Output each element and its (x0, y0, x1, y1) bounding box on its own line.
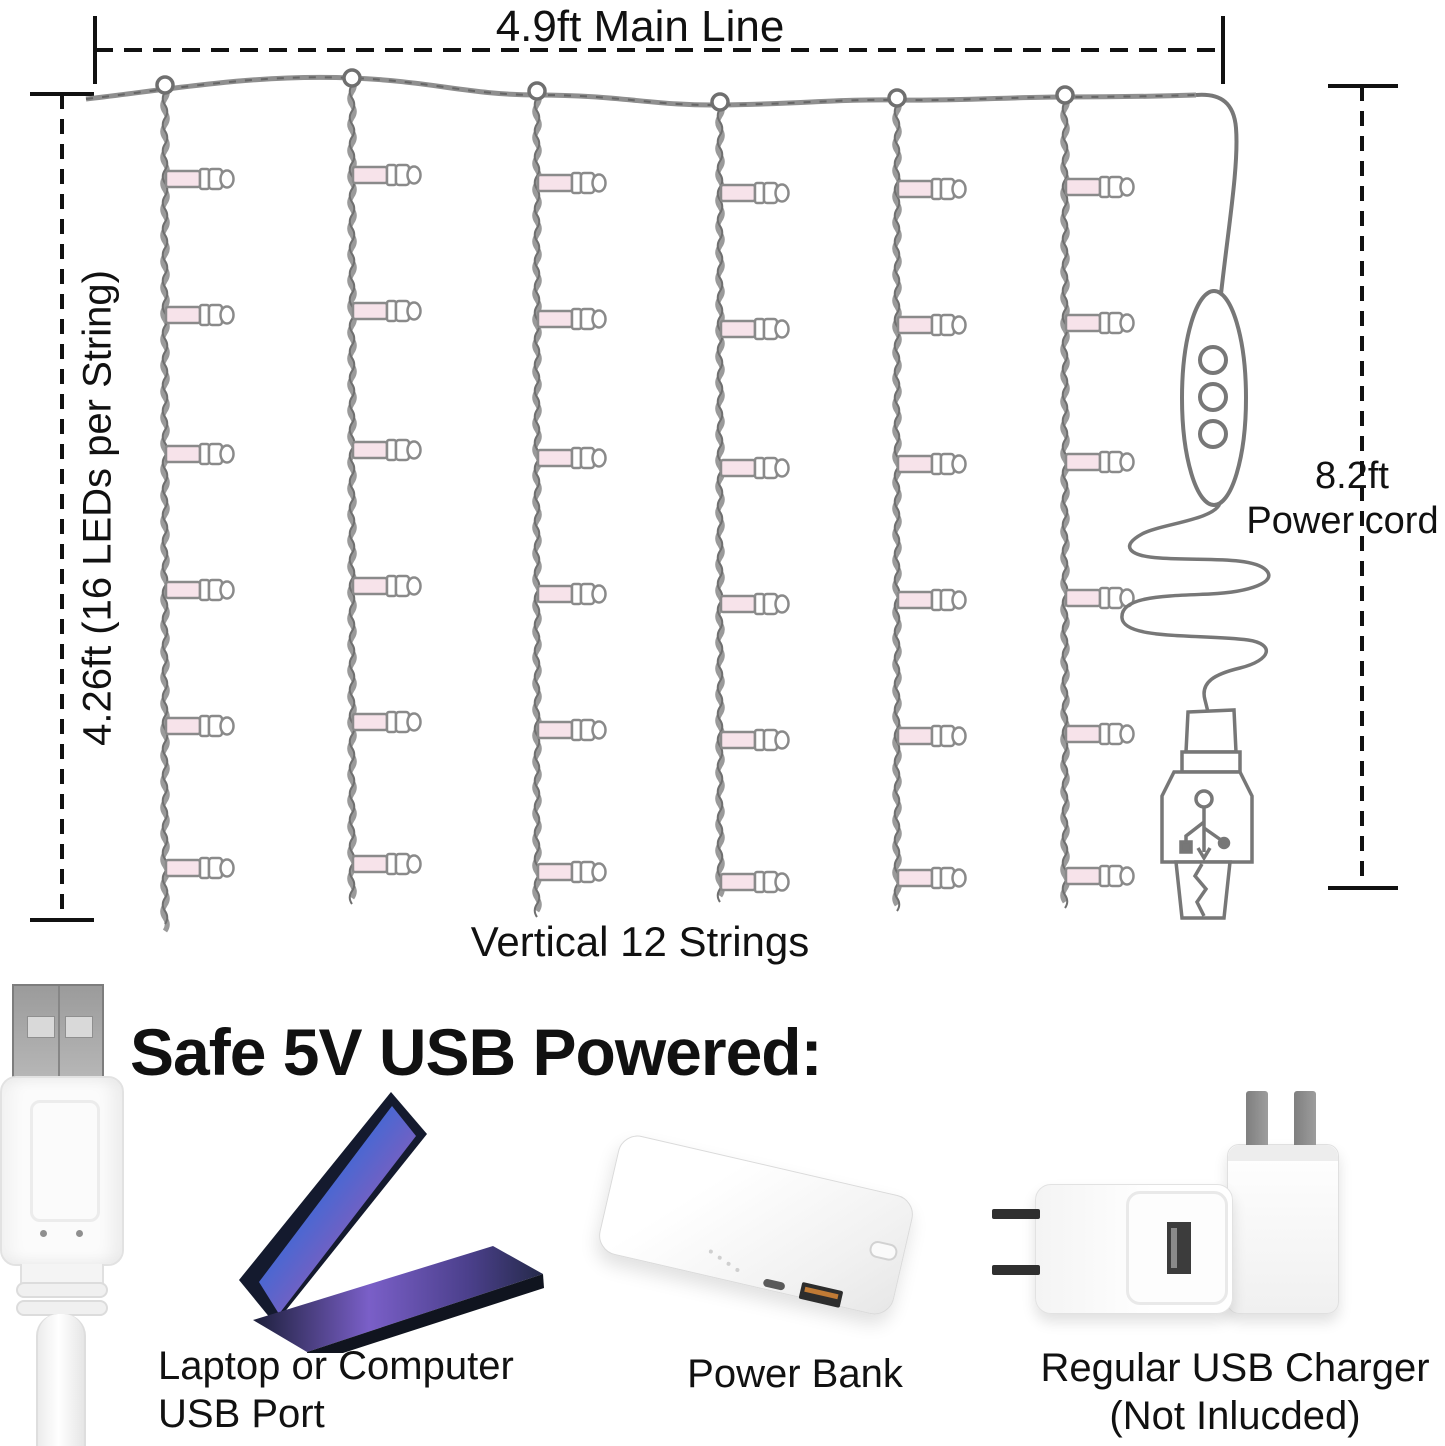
power-bank-usb-port (799, 1282, 844, 1308)
section-heading: Safe 5V USB Powered: (130, 1014, 822, 1090)
string-lights-diagram (0, 0, 1445, 980)
led-bulb-tube (353, 856, 387, 872)
led-bulb-tube (1066, 590, 1100, 606)
usb-plug-cable (36, 1314, 86, 1446)
string-attachment-clip (712, 94, 728, 110)
usb-connector-step (1182, 752, 1240, 772)
led-bulb-collar (572, 584, 581, 604)
led-bulb-tube (353, 167, 387, 183)
led-bulb-cap (408, 578, 421, 595)
led-bulb-collar (755, 319, 764, 339)
charger-prong (1294, 1091, 1316, 1149)
led-bulb-collar (755, 594, 764, 614)
led-bulb-cap (593, 450, 606, 467)
led-bulb-cap (953, 456, 966, 473)
led-bulb-cap (1121, 179, 1134, 196)
string-height-dimension-label: 4.26ft (16 LEDs per String) (76, 270, 121, 746)
usb-plug-body (0, 1076, 124, 1266)
string-attachment-clip (344, 70, 360, 86)
controller-button (1200, 347, 1226, 373)
led-bulb-cap (593, 722, 606, 739)
led-bulb-cap (408, 714, 421, 731)
usb-connector-body (1162, 772, 1252, 862)
power-bank-label: Power Bank (640, 1352, 950, 1397)
led-bulb-cap (953, 181, 966, 198)
led-bulb-cap (953, 728, 966, 745)
led-bulb-collar (200, 716, 209, 736)
led-bulb-tube (166, 307, 200, 323)
led-bulb-tube (166, 446, 200, 462)
led-bulb-collar (387, 576, 396, 596)
string-attachment-clip (529, 83, 545, 99)
led-bulb-collar (755, 458, 764, 478)
led-bulb-tube (353, 578, 387, 594)
led-bulb-collar (1100, 452, 1109, 472)
led-bulb-tube (166, 171, 200, 187)
led-bulb-cap (221, 307, 234, 324)
usb-plug-photo (0, 984, 140, 1446)
led-bulb-collar (387, 165, 396, 185)
led-bulb-collar (755, 730, 764, 750)
power-bank-micro-usb-port (762, 1278, 785, 1291)
led-bulb-cap (776, 321, 789, 338)
power-cord-length-label: 8.2ft (1252, 455, 1445, 498)
led-bulb-tube (353, 442, 387, 458)
led-bulb-collar (387, 301, 396, 321)
led-bulb-tube (538, 586, 572, 602)
led-bulb-tube (538, 175, 572, 191)
led-bulb-collar (572, 173, 581, 193)
led-bulb-tube (721, 185, 755, 201)
led-bulb-cap (221, 582, 234, 599)
led-bulb-cap (221, 718, 234, 735)
led-bulb-cap (408, 856, 421, 873)
led-bulb-cap (776, 185, 789, 202)
usb-charger-photo (1035, 1082, 1375, 1332)
led-bulb-tube (353, 303, 387, 319)
led-bulb-collar (932, 454, 941, 474)
led-bulb-tube (1066, 179, 1100, 195)
usb-connector-drawing (1162, 710, 1252, 918)
led-bulb-cap (221, 446, 234, 463)
led-bulb-tube (898, 728, 932, 744)
vertical-strings-count-label: Vertical 12 Strings (390, 918, 890, 966)
led-bulb-cap (776, 596, 789, 613)
string-attachment-clip (157, 77, 173, 93)
power-bank-button (868, 1239, 899, 1262)
led-bulb-cap (1121, 726, 1134, 743)
charger-prong (992, 1209, 1040, 1219)
led-bulb-collar (1100, 724, 1109, 744)
led-bulb-collar (200, 580, 209, 600)
led-bulb-collar (932, 179, 941, 199)
usb-connector-neck (1186, 710, 1236, 752)
led-bulb-tube (898, 317, 932, 333)
led-bulb-tube (538, 864, 572, 880)
charger-prong (992, 1265, 1040, 1275)
led-bulb-cap (1121, 315, 1134, 332)
led-bulb-tube (1066, 868, 1100, 884)
led-bulb-cap (776, 732, 789, 749)
led-bulb-collar (200, 305, 209, 325)
led-bulb-collar (572, 862, 581, 882)
led-bulb-cap (1121, 868, 1134, 885)
led-bulb-collar (755, 183, 764, 203)
led-bulb-collar (200, 169, 209, 189)
main-line-dimension-label: 4.9ft Main Line (440, 2, 840, 52)
led-bulb-tube (721, 596, 755, 612)
led-bulb-cap (1121, 454, 1134, 471)
led-bulb-collar (200, 444, 209, 464)
led-bulb-cap (221, 860, 234, 877)
controller-button (1200, 421, 1226, 447)
led-bulb-tube (721, 460, 755, 476)
led-bulb-collar (572, 309, 581, 329)
led-bulb-tube (538, 450, 572, 466)
led-bulb-tube (166, 718, 200, 734)
led-bulb-tube (1066, 454, 1100, 470)
usb-connector-metal (1176, 862, 1230, 918)
usb-charger-label: Regular USB Charger (Not Inlucded) (1025, 1344, 1445, 1440)
charger-prong (1246, 1091, 1268, 1149)
led-bulb-collar (387, 854, 396, 874)
usb-plug-contact (27, 1016, 55, 1038)
led-bulb-collar (387, 440, 396, 460)
led-bulb-cap (593, 586, 606, 603)
led-bulb-collar (932, 315, 941, 335)
led-bulb-cap (408, 303, 421, 320)
led-bulb-collar (387, 712, 396, 732)
string-attachment-clip (1057, 87, 1073, 103)
laptop-photo (195, 1088, 545, 1353)
usb-charger-lying (1035, 1184, 1233, 1314)
led-bulb-tube (898, 592, 932, 608)
led-bulb-tube (1066, 726, 1100, 742)
led-bulb-collar (200, 858, 209, 878)
laptop-label: Laptop or Computer USB Port (158, 1342, 514, 1438)
led-bulb-tube (721, 874, 755, 890)
led-bulb-tube (898, 870, 932, 886)
power-cord-upper (1196, 95, 1237, 294)
main-line-wire (86, 77, 1196, 105)
string-attachment-clip (889, 90, 905, 106)
led-bulb-cap (221, 171, 234, 188)
led-bulb-cap (593, 311, 606, 328)
led-bulb-collar (755, 872, 764, 892)
led-bulb-tube (538, 311, 572, 327)
led-bulb-tube (898, 181, 932, 197)
remote-controller (1182, 291, 1246, 505)
led-bulb-cap (593, 175, 606, 192)
led-bulb-cap (953, 317, 966, 334)
led-bulb-tube (353, 714, 387, 730)
power-cord-caption-label: Power cord (1240, 500, 1445, 543)
led-bulb-cap (953, 870, 966, 887)
controller-button (1200, 384, 1226, 410)
led-bulb-collar (1100, 866, 1109, 886)
led-bulb-tube (1066, 315, 1100, 331)
led-bulb-tube (166, 860, 200, 876)
led-bulb-tube (166, 582, 200, 598)
power-bank-photo (595, 1128, 925, 1340)
led-bulb-cap (776, 460, 789, 477)
led-bulb-tube (721, 732, 755, 748)
led-bulb-collar (932, 726, 941, 746)
led-bulb-tube (898, 456, 932, 472)
led-bulb-cap (953, 592, 966, 609)
product-diagram-image: 4.9ft Main Line 4.26ft (16 LEDs per Stri… (0, 0, 1445, 1446)
led-bulb-collar (572, 720, 581, 740)
led-bulb-tube (721, 321, 755, 337)
led-bulb-cap (593, 864, 606, 881)
led-bulb-collar (572, 448, 581, 468)
led-bulb-collar (1100, 588, 1109, 608)
usb-plug-contact (65, 1016, 93, 1038)
led-bulb-tube (538, 722, 572, 738)
led-bulb-collar (1100, 313, 1109, 333)
vertical-strings-layer (157, 70, 1134, 931)
charger-usb-port (1167, 1222, 1191, 1274)
led-bulb-cap (408, 442, 421, 459)
led-bulb-collar (932, 868, 941, 888)
led-bulb-cap (776, 874, 789, 891)
usb-plug-metal-tip (12, 984, 104, 1078)
led-bulb-collar (1100, 177, 1109, 197)
led-bulb-collar (932, 590, 941, 610)
led-bulb-cap (408, 167, 421, 184)
usb-charger-standing (1227, 1144, 1339, 1314)
